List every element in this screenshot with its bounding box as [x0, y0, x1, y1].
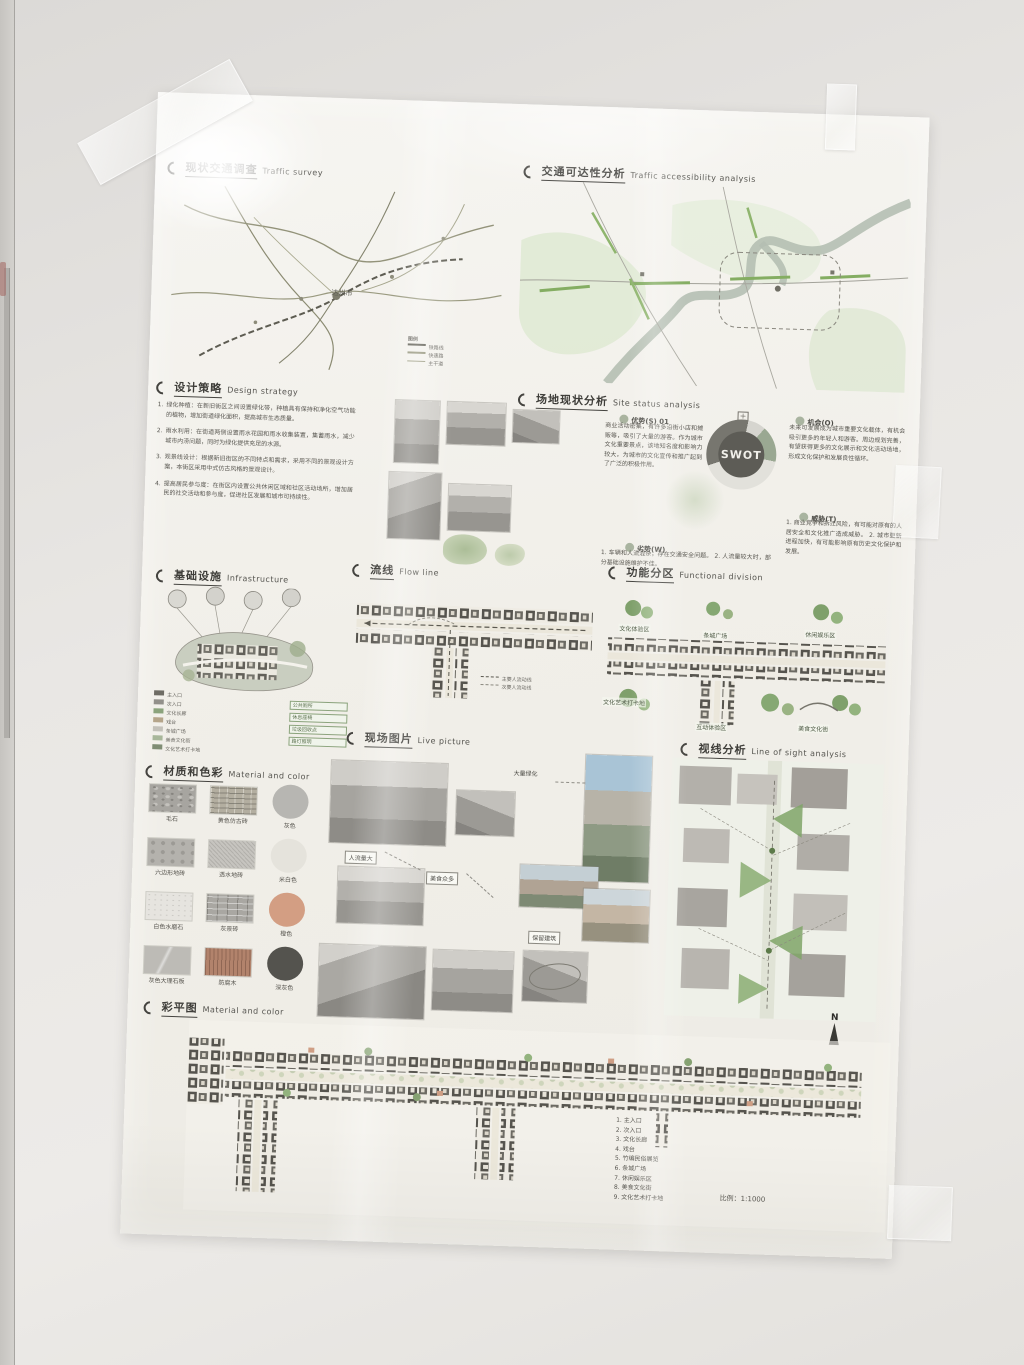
- design-poster: 现状交通调查 Traffic survey 达州市 图例 铁路线 快速路 主干道…: [120, 92, 929, 1259]
- tag-item: 公共厕所: [290, 701, 348, 712]
- color-dot-charcoal: [267, 946, 304, 981]
- plant-sketch: [443, 534, 488, 565]
- color-master-plan: [183, 1020, 891, 1233]
- section-title-zh: 视线分析: [698, 740, 747, 760]
- zone-label: 互动体验区: [695, 722, 727, 732]
- infrastructure-legend-right: 公共厕所 休息座椅 垃圾回收点 路灯照明: [288, 701, 348, 751]
- chip-icon: [153, 717, 163, 722]
- annotation-food: 美食众多: [426, 871, 458, 885]
- live-photo-overpass-color: [582, 755, 652, 883]
- arterial-sample: [407, 360, 425, 362]
- chip-icon: [152, 744, 162, 749]
- sight-analysis-map: [664, 757, 884, 1022]
- section-title-zh: 功能分区: [626, 564, 675, 584]
- scale-text: 比例：1:1000: [719, 1193, 765, 1206]
- color-swatch: 米白色: [270, 838, 307, 884]
- section-icon: [606, 563, 624, 581]
- annotation-crowds: 人流量大: [345, 851, 377, 865]
- accessibility-map: [517, 180, 911, 393]
- tag-item: 路灯照明: [288, 737, 346, 748]
- section-icon: [678, 740, 696, 758]
- live-photo-crowd: [456, 790, 515, 836]
- section-icon: [350, 561, 368, 579]
- material-swatch: 灰色大理石板: [143, 946, 190, 986]
- zone-label: 条城广场: [702, 630, 728, 640]
- chip-icon: [153, 735, 163, 740]
- section-title-zh: 彩平图: [161, 999, 198, 1018]
- section-icon: [154, 378, 172, 396]
- live-photo-shops-color: [582, 889, 650, 943]
- strategy-item: 2. 雨水利用：在街道两侧设置雨水花园和雨水收集装置，集蓄雨水，减少城市内涝问题…: [156, 426, 355, 452]
- section-title-zh: 基础设施: [174, 567, 223, 587]
- material-swatch: 六边形地砖: [147, 838, 194, 878]
- texture-marble: [144, 946, 191, 975]
- strategy-item: 4. 提高居民参与度：在街区内设置公共休闲区域和社区活动场所，增加居民的社交活动…: [155, 479, 354, 505]
- rail-line-sample: [408, 343, 426, 346]
- legend-item: 9. 文化艺术打卡地: [613, 1192, 663, 1203]
- texture-hex-paver: [147, 838, 194, 867]
- tag-item: 垃圾回收点: [289, 725, 347, 736]
- live-photo-market: [317, 944, 425, 1019]
- plant-sketch: [494, 543, 525, 566]
- chip-icon: [154, 699, 164, 704]
- legend-item: 次要人流动线: [480, 683, 531, 693]
- section-title-zh: 设计策略: [174, 379, 223, 399]
- tape-bottom-right: [887, 1185, 953, 1241]
- live-photo-stalls: [432, 950, 514, 1013]
- material-swatch: 透水地砖: [208, 840, 255, 880]
- zone-label: 文化体验区: [618, 624, 650, 634]
- texture-terrazzo: [146, 892, 193, 921]
- section-material-color-title: 材质和色彩 Material and color: [145, 762, 310, 785]
- opportunity-text: 未来可发展成为城市重要文化载体，有机会吸引更多的年轻人和游客。周边规划完善，有望…: [788, 423, 905, 465]
- texture-yellow-brick: [210, 786, 257, 815]
- site-photo: [394, 400, 440, 463]
- expressway-sample: [407, 351, 425, 354]
- color-swatch: 灰色: [272, 784, 309, 830]
- material-swatch: 白色水磨石: [145, 892, 192, 932]
- strategy-item: 1. 绿化种植：在新旧街区之间设置绿化带，种植具有保持和净化空气功能的植物，增加…: [157, 400, 356, 426]
- site-photo: [446, 402, 505, 446]
- tape-top-right: [825, 83, 857, 150]
- section-live-picture-title: 现场图片 Live picture: [346, 729, 470, 751]
- main-flow-sample: [481, 676, 499, 678]
- swot-core-label: SWOT: [718, 431, 765, 478]
- texture-wood: [205, 948, 252, 977]
- threat-text: 1. 商业竞争和拆迁风险，有可能对原有的人居安全和文化推广造成威胁。 2. 城市…: [785, 518, 902, 560]
- section-icon: [153, 566, 171, 584]
- strength-text: 商业活动密集，有许多沿街小店和摊贩等，吸引了大量的游客。作为城市文化重要景点，该…: [604, 421, 704, 472]
- annotation-retained: 保留建筑: [528, 931, 560, 945]
- zone-label: 休闲娱乐区: [804, 630, 836, 640]
- color-swatch: 橙色: [268, 892, 305, 938]
- material-swatch: 灰景砖: [206, 894, 253, 934]
- strategy-item: 3. 观景线设计：根据新旧街区的不同特点和需求，采用不同的景观设计方案，本街区采…: [155, 453, 354, 479]
- wall-edge-line: [4, 268, 10, 738]
- material-swatch: 防腐木: [204, 948, 251, 988]
- live-photo-street: [329, 760, 448, 846]
- texture-stone: [149, 784, 196, 813]
- material-swatch: 毛石: [149, 784, 196, 824]
- section-functional-division-title: 功能分区 Functional division: [608, 563, 763, 586]
- live-photo-alley: [337, 866, 425, 925]
- section-design-strategy-title: 设计策略 Design strategy: [156, 378, 299, 401]
- section-icon: [141, 998, 159, 1016]
- section-flow-line-title: 流线 Flow line: [352, 561, 439, 582]
- zone-label: 文化艺术打卡地: [602, 697, 646, 707]
- section-title-zh: 现场图片: [364, 729, 413, 749]
- section-color-plan-title: 彩平图 Material and color: [143, 998, 284, 1021]
- section-title-en: Line of sight analysis: [751, 747, 846, 759]
- section-title-en: Design strategy: [227, 385, 298, 396]
- chip-icon: [153, 708, 163, 713]
- connector-line: [466, 873, 493, 898]
- tag-item: 休息座椅: [289, 713, 347, 724]
- flow-line-plan: [346, 589, 602, 707]
- material-swatch: 黄色仿古砖: [210, 786, 257, 826]
- wall-red-mark: [0, 262, 6, 296]
- section-title-en: Traffic accessibility analysis: [630, 171, 756, 184]
- texture-gray-brick: [207, 894, 254, 923]
- section-icon: [344, 729, 362, 747]
- site-photo: [387, 472, 441, 540]
- section-title-zh: 材质和色彩: [163, 763, 224, 783]
- north-label: N: [830, 1013, 840, 1023]
- section-title-en: Material and color: [202, 1005, 284, 1017]
- functional-division-plan: [599, 585, 894, 745]
- survey-map-legend: 图例 铁路线 快速路 主干道: [407, 335, 488, 370]
- section-title-en: Material and color: [228, 770, 310, 782]
- zone-label: 美食文化街: [797, 724, 829, 734]
- color-dot-salmon: [268, 892, 305, 927]
- tape-right-middle: [892, 465, 942, 539]
- section-icon: [515, 390, 533, 408]
- section-title-en: Flow line: [399, 567, 439, 577]
- design-strategy-list: 1. 绿化种植：在新旧街区之间设置绿化带，种植具有保持和净化空气功能的植物，增加…: [154, 400, 355, 511]
- color-dot-gray: [272, 784, 309, 819]
- color-swatch: 深灰色: [266, 946, 303, 992]
- site-photo: [448, 484, 511, 532]
- section-title-en: Infrastructure: [227, 574, 289, 585]
- site-photo: [513, 410, 560, 444]
- flow-legend: 主要人流动线 次要人流动线: [480, 675, 532, 693]
- chip-icon: [153, 726, 163, 731]
- secondary-flow-sample: [481, 684, 499, 686]
- color-dot-cream: [270, 838, 307, 873]
- infrastructure-legend-left: 主入口 次入口 文化长廊 戏台 条城广场 美食文化街 文化艺术打卡地: [152, 690, 274, 757]
- texture-permeable-paver: [208, 840, 255, 869]
- section-title-en: Functional division: [679, 571, 763, 583]
- city-label: 达州市: [331, 288, 352, 299]
- section-title-zh: 流线: [370, 561, 395, 580]
- infrastructure-axon-map: [146, 584, 349, 699]
- connector-line: [555, 782, 585, 784]
- chip-icon: [154, 690, 164, 695]
- annotation-greenery: 大量绿化: [513, 768, 537, 778]
- section-icon: [143, 762, 161, 780]
- plan-legend: 1. 主入口 2. 次入口 3. 文化长廊 4. 戏台 5. 竹编民俗展览 6.…: [613, 1116, 665, 1204]
- section-title-zh: 场地现状分析: [536, 391, 609, 411]
- section-icon: [521, 162, 539, 180]
- section-title-en: Live picture: [417, 736, 470, 747]
